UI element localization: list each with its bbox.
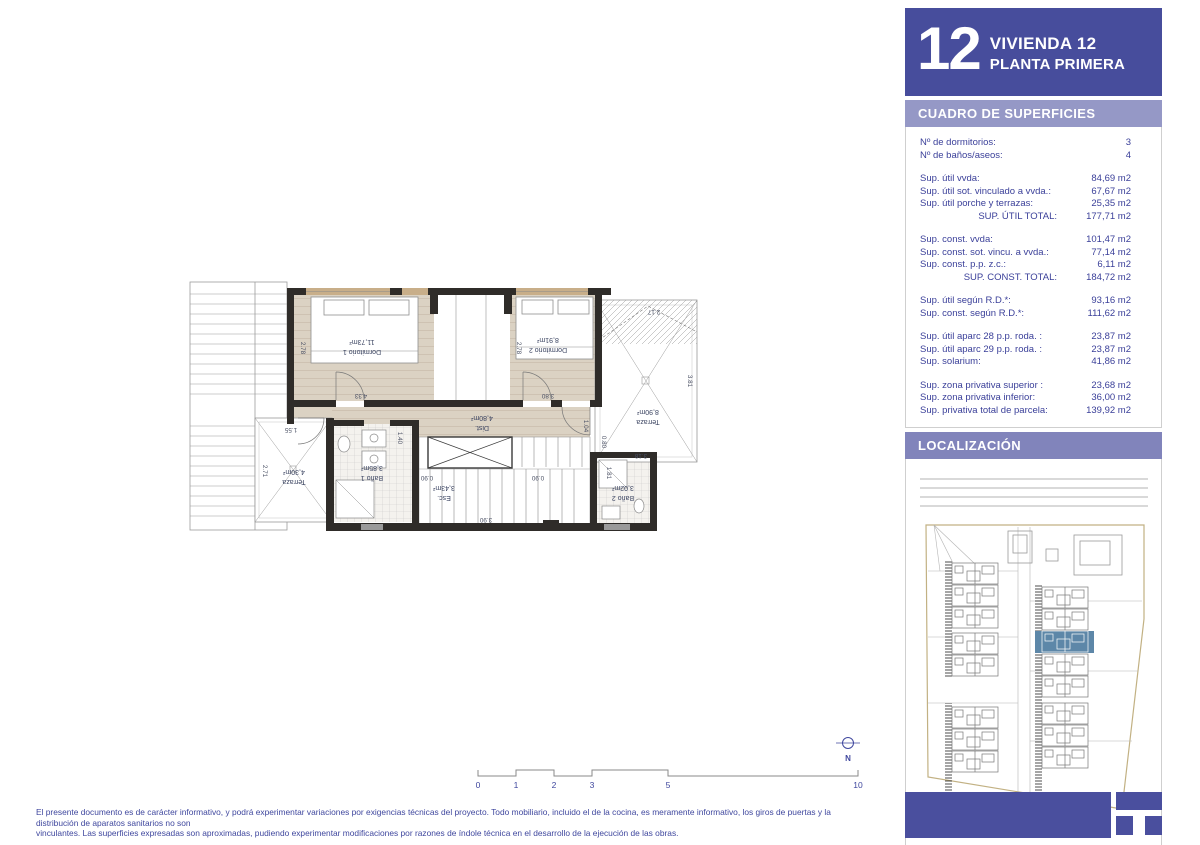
svg-text:5: 5 — [666, 780, 671, 790]
site-structures — [1008, 531, 1122, 575]
svg-text:Dormitorio 2: Dormitorio 2 — [529, 346, 567, 353]
table-row: Sup. privativa total de parcela:139,92 m… — [920, 405, 1131, 418]
road-lines — [920, 479, 1148, 506]
plan-sheet: Dormitorio 1 11,73m² Dormitorio 2 8,91m²… — [0, 0, 1200, 845]
surfaces-section-title: CUADRO DE SUPERFICIES — [905, 100, 1162, 127]
svg-text:2.71: 2.71 — [261, 465, 268, 478]
north-arrow: N — [833, 733, 863, 772]
svg-text:3,02m²: 3,02m² — [611, 484, 633, 491]
table-row: Sup. const. p.p. z.c.:6,11 m2 — [920, 259, 1131, 272]
floor-subtitle: PLANTA PRIMERA — [990, 56, 1125, 73]
svg-text:4,80m²: 4,80m² — [470, 414, 492, 421]
floor-plan: Dormitorio 1 11,73m² Dormitorio 2 8,91m²… — [186, 266, 716, 551]
north-label: N — [845, 754, 851, 763]
localization-section-title: LOCALIZACIÓN — [905, 432, 1162, 459]
table-row: Sup. útil vvda:84,69 m2 — [920, 173, 1131, 186]
svg-text:Esc.: Esc. — [437, 494, 451, 501]
svg-text:3.18: 3.18 — [634, 452, 647, 459]
brand-logo-square-2 — [1145, 816, 1162, 835]
table-row: Sup. const. según R.D.*:111,62 m2 — [920, 308, 1131, 321]
brand-logo — [1116, 792, 1162, 838]
table-row: Sup. útil según R.D.*:93,16 m2 — [920, 295, 1131, 308]
svg-text:8,90m²: 8,90m² — [636, 408, 658, 415]
svg-text:0.90: 0.90 — [420, 474, 433, 481]
svg-text:1.55: 1.55 — [284, 426, 297, 433]
svg-text:3.81: 3.81 — [686, 375, 693, 388]
buildings-right — [1035, 585, 1094, 793]
table-row: Sup. const. vvda:101,47 m2 — [920, 234, 1131, 247]
unit-title: VIVIENDA 12 — [990, 34, 1125, 54]
svg-text:4.33: 4.33 — [354, 392, 367, 399]
svg-text:1.04: 1.04 — [582, 420, 589, 433]
info-panel: 12 VIVIENDA 12 PLANTA PRIMERA CUADRO DE … — [905, 8, 1162, 845]
svg-text:3,43m²: 3,43m² — [432, 484, 454, 491]
svg-text:2: 2 — [552, 780, 557, 790]
table-row: Sup. útil porche y terrazas:25,35 m2 — [920, 198, 1131, 211]
svg-text:3.90: 3.90 — [479, 516, 492, 523]
svg-text:0.80: 0.80 — [600, 436, 607, 449]
svg-text:1.40: 1.40 — [396, 432, 403, 445]
table-row-total: SUP. CONST. TOTAL:184,72 m2 — [920, 272, 1131, 285]
svg-text:3: 3 — [590, 780, 595, 790]
brand-logo-bar — [1116, 792, 1162, 810]
surfaces-table: Nº de dormitorios:3 Nº de baños/aseos:4 … — [905, 127, 1162, 428]
footer-bar — [905, 792, 1111, 838]
svg-text:Baño 1: Baño 1 — [361, 474, 383, 481]
disclaimer: El presente documento es de carácter inf… — [36, 807, 866, 839]
brand-logo-square-1 — [1116, 816, 1133, 835]
svg-text:2.78: 2.78 — [515, 342, 522, 355]
svg-text:2.17: 2.17 — [647, 308, 660, 315]
unit-number: 12 — [905, 19, 990, 85]
disclaimer-line-2: vinculantes. Las superficies expresadas … — [36, 828, 866, 839]
table-row: Nº de baños/aseos:4 — [920, 150, 1131, 163]
site-map-drawing — [914, 471, 1154, 843]
disclaimer-line-1: El presente documento es de carácter inf… — [36, 807, 866, 828]
svg-text:1.81: 1.81 — [605, 467, 612, 480]
svg-text:3.80: 3.80 — [541, 392, 554, 399]
table-row: Sup. zona privativa inferior:36,00 m2 — [920, 392, 1131, 405]
scale-bar: 0 1 2 3 5 10 — [468, 764, 868, 797]
panel-header: 12 VIVIENDA 12 PLANTA PRIMERA — [905, 8, 1162, 96]
table-row: Sup. solarium:41,86 m2 — [920, 356, 1131, 369]
svg-text:1: 1 — [514, 780, 519, 790]
svg-text:10: 10 — [853, 780, 863, 790]
table-row: Sup. útil sot. vinculado a vvda.:67,67 m… — [920, 186, 1131, 199]
svg-text:Terraza: Terraza — [636, 418, 659, 425]
svg-text:Baño 2: Baño 2 — [612, 494, 634, 501]
svg-text:Dormitorio 1: Dormitorio 1 — [343, 348, 381, 355]
staircase — [419, 437, 590, 528]
table-row: Sup. útil aparc 28 p.p. roda. :23,87 m2 — [920, 331, 1131, 344]
site-map — [905, 459, 1162, 845]
floor-plan-drawing: Dormitorio 1 11,73m² Dormitorio 2 8,91m²… — [186, 266, 716, 546]
svg-text:0: 0 — [476, 780, 481, 790]
svg-text:4,30m²: 4,30m² — [282, 468, 304, 475]
table-row-total: SUP. ÚTIL TOTAL:177,71 m2 — [920, 211, 1131, 224]
svg-text:2.78: 2.78 — [299, 342, 306, 355]
table-row: Sup. útil aparc 29 p.p. roda. :23,87 m2 — [920, 344, 1131, 357]
svg-text:11,73m²: 11,73m² — [349, 338, 375, 345]
svg-text:8,91m²: 8,91m² — [536, 336, 558, 343]
table-row: Sup. const. sot. vincu. a vvda.:77,14 m2 — [920, 247, 1131, 260]
scale-numbers: 0 1 2 3 5 10 — [476, 780, 863, 790]
buildings-left — [945, 561, 998, 793]
svg-text:Terraza: Terraza — [282, 478, 305, 485]
terrace-2 — [595, 300, 697, 462]
table-row: Nº de dormitorios:3 — [920, 137, 1131, 150]
svg-text:3,85m²: 3,85m² — [360, 464, 382, 471]
highlighted-unit-12 — [1035, 631, 1094, 653]
svg-text:0.90: 0.90 — [531, 474, 544, 481]
svg-text:Dist.: Dist. — [475, 424, 489, 431]
table-row: Sup. zona privativa superior :23,68 m2 — [920, 380, 1131, 393]
